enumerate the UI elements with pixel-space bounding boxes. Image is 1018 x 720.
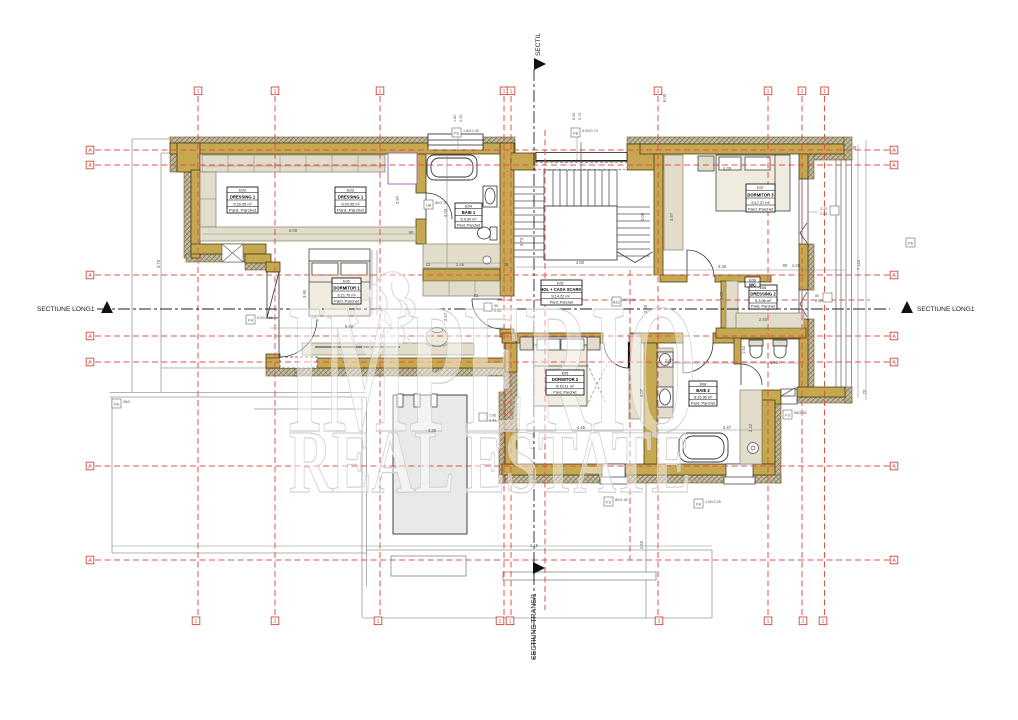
svg-text:80: 80 <box>815 294 819 298</box>
svg-text:SECTIUNE TRANS/1: SECTIUNE TRANS/1 <box>531 593 538 660</box>
svg-text:2.97: 2.97 <box>395 195 400 204</box>
svg-text:2.20: 2.20 <box>494 309 501 313</box>
svg-text:1.80: 1.80 <box>453 115 457 122</box>
svg-text:1.65: 1.65 <box>719 291 724 300</box>
svg-text:1: 1 <box>197 89 200 95</box>
svg-text:E03: E03 <box>347 189 354 193</box>
svg-text:1: 1 <box>509 619 512 625</box>
svg-text:1: 1 <box>499 619 502 625</box>
svg-text:1: 1 <box>822 619 825 625</box>
svg-text:DORMITOR 3: DORMITOR 3 <box>747 193 774 198</box>
svg-text:92: 92 <box>474 293 479 298</box>
svg-text:SECTIUNE LONG1: SECTIUNE LONG1 <box>917 306 975 313</box>
svg-text:26: 26 <box>504 262 509 267</box>
svg-text:Pard.:Parchet: Pard.:Parchet <box>229 209 257 213</box>
svg-text:WC: WC <box>749 282 756 287</box>
svg-text:A12: A12 <box>613 300 621 305</box>
svg-text:1: 1 <box>802 619 805 625</box>
svg-text:90: 90 <box>494 304 498 308</box>
svg-text:1: 1 <box>657 89 660 95</box>
svg-text:REAL ESTATE: REAL ESTATE <box>289 413 691 512</box>
svg-text:1.96: 1.96 <box>489 414 496 418</box>
svg-text:1: 1 <box>195 619 198 625</box>
svg-text:S:17.27 m²: S:17.27 m² <box>751 201 770 205</box>
svg-text:4.50: 4.50 <box>639 540 644 549</box>
svg-text:F8: F8 <box>696 502 701 507</box>
svg-text:Pard.:Parchet: Pard.:Parchet <box>457 224 481 228</box>
svg-text:1: 1 <box>377 619 380 625</box>
svg-text:6.00: 6.00 <box>572 113 576 120</box>
svg-text:1.90: 1.90 <box>770 360 779 365</box>
svg-text:SECTIUNE LONG1: SECTIUNE LONG1 <box>37 306 95 313</box>
svg-text:BAIE 1: BAIE 1 <box>462 210 476 215</box>
svg-text:4.07: 4.07 <box>639 388 644 397</box>
svg-text:2.40: 2.40 <box>759 317 768 322</box>
svg-text:1.20: 1.20 <box>792 263 801 268</box>
svg-text:1: 1 <box>379 89 382 95</box>
svg-text:Pard.:Parchet: Pard.:Parchet <box>748 208 774 212</box>
svg-text:36/0: 36/0 <box>123 400 130 404</box>
svg-text:S:9.60 m²: S:9.60 m² <box>460 218 477 222</box>
svg-text:Pard.:Parchet: Pard.:Parchet <box>691 402 716 406</box>
svg-text:E06: E06 <box>760 286 767 290</box>
svg-text:E03: E03 <box>239 189 246 193</box>
svg-text:5.00/2.55: 5.00/2.55 <box>257 316 273 320</box>
svg-text:F4: F4 <box>248 318 253 323</box>
svg-text:S:14.22 m²: S:14.22 m² <box>551 295 570 299</box>
svg-text:S:20.55 m²: S:20.55 m² <box>341 202 360 206</box>
svg-text:DORMITOR 2: DORMITOR 2 <box>552 377 579 382</box>
svg-text:S:15.96 m²: S:15.96 m² <box>694 396 713 400</box>
svg-text:DRESSING 1: DRESSING 1 <box>230 195 256 200</box>
svg-text:F6: F6 <box>908 241 913 246</box>
svg-text:1.15: 1.15 <box>530 543 539 548</box>
svg-text:2.25: 2.25 <box>643 304 648 313</box>
svg-text:2.32: 2.32 <box>748 423 753 432</box>
svg-text:4.30: 4.30 <box>428 428 437 433</box>
svg-text:4.80: 4.80 <box>576 260 585 265</box>
svg-text:E04: E04 <box>465 204 472 208</box>
svg-text:80/2.45: 80/2.45 <box>615 498 628 502</box>
svg-text:DRESSING 2: DRESSING 2 <box>750 292 776 297</box>
svg-text:1: 1 <box>767 89 770 95</box>
svg-text:40: 40 <box>852 145 857 150</box>
svg-text:Pard.:Parchet: Pard.:Parchet <box>751 305 776 309</box>
svg-text:3.47: 3.47 <box>723 425 732 430</box>
svg-text:2.20: 2.20 <box>820 207 827 211</box>
svg-text:2.40: 2.40 <box>459 115 463 122</box>
svg-text:90: 90 <box>783 263 788 268</box>
svg-text:1: 1 <box>274 619 277 625</box>
svg-text:1: 1 <box>274 89 277 95</box>
svg-text:1: 1 <box>510 89 513 95</box>
svg-text:1: 1 <box>801 89 804 95</box>
svg-text:4.35: 4.35 <box>723 166 732 171</box>
svg-text:E08: E08 <box>700 382 707 386</box>
svg-text:7.110: 7.110 <box>856 259 861 270</box>
svg-text:6.00: 6.00 <box>289 228 298 233</box>
svg-text:DORMITOR 1: DORMITOR 1 <box>333 286 360 291</box>
svg-text:S:20.55 m²: S:20.55 m² <box>233 202 252 206</box>
svg-text:2.47: 2.47 <box>665 358 674 363</box>
svg-text:98/2.45: 98/2.45 <box>794 411 807 415</box>
svg-text:HOL + CASA SCARII: HOL + CASA SCARII <box>540 287 581 292</box>
svg-text:6.00/0.70: 6.00/0.70 <box>582 129 598 133</box>
svg-text:1: 1 <box>767 619 770 625</box>
svg-text:DRESSING 1: DRESSING 1 <box>338 195 364 200</box>
svg-text:3.45: 3.45 <box>718 264 727 269</box>
svg-text:1.80/2.40: 1.80/2.40 <box>463 129 479 133</box>
svg-text:1: 1 <box>658 619 661 625</box>
svg-text:1: 1 <box>823 89 826 95</box>
svg-text:Pard.:Parchet: Pard.:Parchet <box>553 391 577 395</box>
svg-text:U8: U8 <box>426 203 432 208</box>
svg-text:1.60/2.45: 1.60/2.45 <box>705 500 721 504</box>
svg-text:E05: E05 <box>562 371 569 375</box>
svg-text:1: 1 <box>503 89 506 95</box>
svg-text:3.90: 3.90 <box>302 289 307 298</box>
svg-text:1.62: 1.62 <box>741 345 746 354</box>
svg-text:E01: E01 <box>557 281 564 285</box>
svg-text:E02: E02 <box>343 280 350 284</box>
svg-text:F6: F6 <box>114 402 119 407</box>
svg-text:F6: F6 <box>454 131 459 136</box>
svg-text:S:18.11 m²: S:18.11 m² <box>556 385 575 389</box>
svg-text:Pard.:Parchet: Pard.:Parchet <box>334 300 360 304</box>
svg-text:6.00: 6.00 <box>662 93 667 102</box>
svg-text:BAIE 2: BAIE 2 <box>696 388 710 393</box>
svg-text:90/2.36: 90/2.36 <box>623 298 636 302</box>
svg-text:F8: F8 <box>573 131 578 136</box>
svg-text:Pard.:Parchet: Pard.:Parchet <box>550 301 574 305</box>
svg-text:3.73: 3.73 <box>519 237 524 246</box>
svg-text:3.70: 3.70 <box>156 259 161 268</box>
svg-text:2.68: 2.68 <box>820 212 827 216</box>
svg-text:2.47: 2.47 <box>293 368 298 377</box>
svg-text:0.70: 0.70 <box>578 113 582 120</box>
svg-text:E07: E07 <box>757 186 764 190</box>
svg-text:4.45: 4.45 <box>577 425 586 430</box>
svg-text:F3: F3 <box>785 413 790 418</box>
svg-text:2.50: 2.50 <box>815 299 822 303</box>
svg-text:3.00: 3.00 <box>640 212 645 221</box>
svg-text:80/2.20: 80/2.20 <box>435 201 448 205</box>
svg-text:4.49: 4.49 <box>489 419 496 423</box>
svg-text:F3: F3 <box>606 500 611 505</box>
svg-text:S:21.76 m²: S:21.76 m² <box>337 293 356 297</box>
svg-text:SECTIL: SECTIL <box>535 33 542 56</box>
svg-text:2.47: 2.47 <box>443 312 448 321</box>
svg-text:3.97: 3.97 <box>669 212 674 221</box>
svg-text:S:3.96 m²: S:3.96 m² <box>755 299 772 303</box>
svg-text:Pard.:Parchet: Pard.:Parchet <box>337 209 365 213</box>
